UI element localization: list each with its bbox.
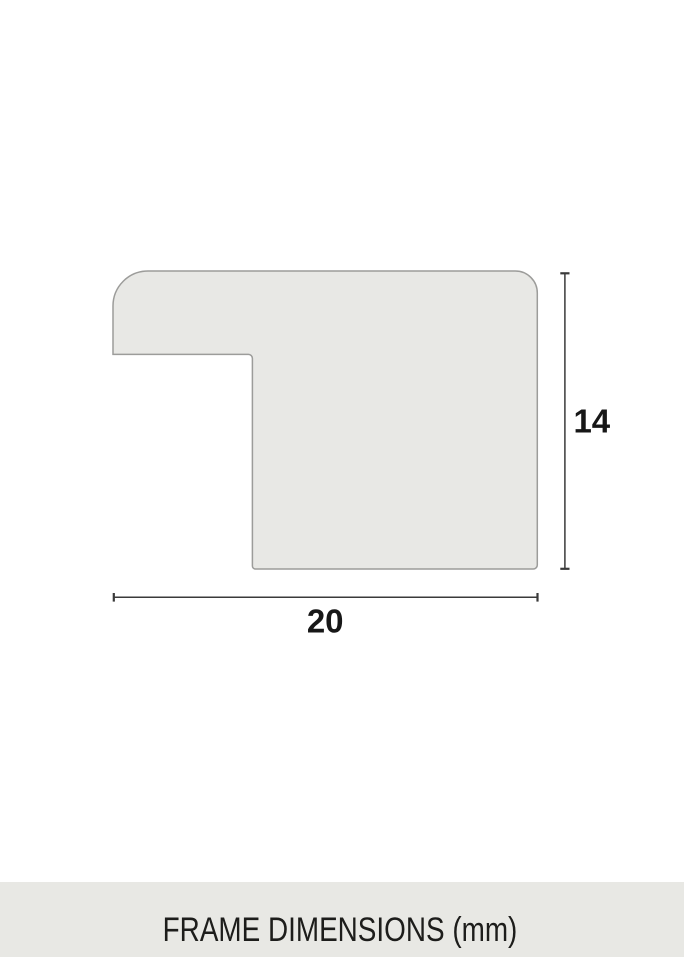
svg-text:14: 14: [573, 402, 610, 439]
svg-text:20: 20: [307, 603, 344, 640]
